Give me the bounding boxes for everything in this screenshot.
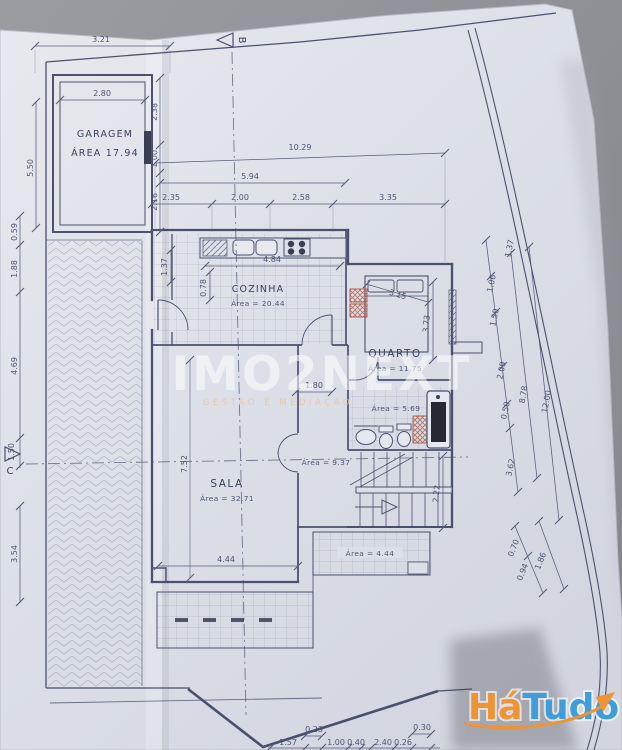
plan-canvas: 3.21 2.80 5.50 2.38 1.00 2.16 10.29 5.94… <box>0 0 622 750</box>
bedroom-window <box>449 290 456 344</box>
dim-kitchen-width: 4.84 <box>263 255 281 264</box>
dim-garage-left: 5.50 <box>26 159 35 177</box>
kitchen-cabinet <box>203 240 227 256</box>
bathtub-interior <box>431 402 446 442</box>
dim-left-4: 1.50 <box>7 443 16 461</box>
dim-left-3: 4.69 <box>10 357 19 375</box>
label-terraco-area: Área = 4.44 <box>346 549 395 558</box>
label-banho-area: Área = 5.69 <box>372 404 421 413</box>
watermark: IMO2NEXT GESTÃO E MEDIAÇÃO <box>172 347 473 408</box>
dim-chain-4: 3.35 <box>379 193 397 202</box>
label-sala: SALA <box>210 478 243 490</box>
dim-chain-2: 2.00 <box>231 193 249 202</box>
dim-top-mid: 5.94 <box>241 172 259 181</box>
dim-stairs: 2.22 <box>431 485 442 504</box>
dim-chain-1: 2.35 <box>162 193 180 202</box>
dim-bottom-3: 1.00 <box>327 738 345 747</box>
dim-overall-top: 10.29 <box>289 143 312 152</box>
bidet-back <box>397 424 411 430</box>
dim-bottom-7: 0.30 <box>413 723 431 732</box>
section-label-c: C <box>7 466 14 477</box>
label-cozinha: COZINHA <box>232 284 285 295</box>
dim-bottom-4: 0.40 <box>347 738 365 747</box>
label-garagem: GARAGEM <box>77 129 133 140</box>
watermark-subtitle: GESTÃO E MEDIAÇÃO <box>203 397 353 408</box>
watermark-title: IMO2NEXT <box>172 347 473 402</box>
label-cozinha-area: Área = 20.44 <box>231 299 285 308</box>
dim-left-5: 3.54 <box>10 545 19 563</box>
floor-plan-photo: 3.21 2.80 5.50 2.38 1.00 2.16 10.29 5.94… <box>0 0 622 750</box>
wardrobe <box>350 304 367 317</box>
washbasin <box>356 430 376 445</box>
label-garagem-area: ÁREA 17.94 <box>71 147 139 159</box>
section-label-b: B <box>236 37 247 44</box>
bidet <box>398 432 411 447</box>
dim-chain-3: 2.58 <box>292 193 310 202</box>
dim-right-of-garage-3: 2.16 <box>150 193 160 211</box>
dim-quarto-height: 3.73 <box>421 315 432 334</box>
dim-bottom-1: 1.57 <box>279 738 297 747</box>
dim-garage-inner: 2.80 <box>93 89 111 98</box>
wardrobe <box>350 289 367 302</box>
dim-right-of-garage-1: 2.38 <box>150 103 160 121</box>
toilet <box>380 434 393 449</box>
shower-column <box>413 416 428 443</box>
dim-kitchen-left: 0.78 <box>199 279 208 297</box>
dim-entry: 1.37 <box>160 258 169 276</box>
dim-right-of-garage-2: 1.00 <box>150 150 160 168</box>
dim-bottom-5: 2.40 <box>374 738 392 747</box>
driveway-hatch <box>48 241 142 686</box>
label-sala-area: Área = 32.71 <box>200 494 254 503</box>
dim-left-2: 1.88 <box>10 260 19 278</box>
dim-left-1: 0.59 <box>10 223 19 241</box>
label-hall-area: Área = 9.37 <box>302 458 351 467</box>
dim-garage-top: 3.21 <box>92 35 110 44</box>
toilet-cistern <box>379 426 393 432</box>
dim-bottom-6: 0.26 <box>394 738 412 747</box>
dim-sala-width: 4.44 <box>217 555 235 564</box>
sink-basin-right <box>256 240 277 255</box>
logo-text-ha: Há <box>468 687 522 728</box>
logo-text: HáTudo <box>468 687 619 728</box>
hatudo-logo: HáTudo <box>466 687 619 728</box>
dim-bottom-2: 0.23 <box>305 725 323 734</box>
dim-sala-height: 7.52 <box>180 455 189 473</box>
